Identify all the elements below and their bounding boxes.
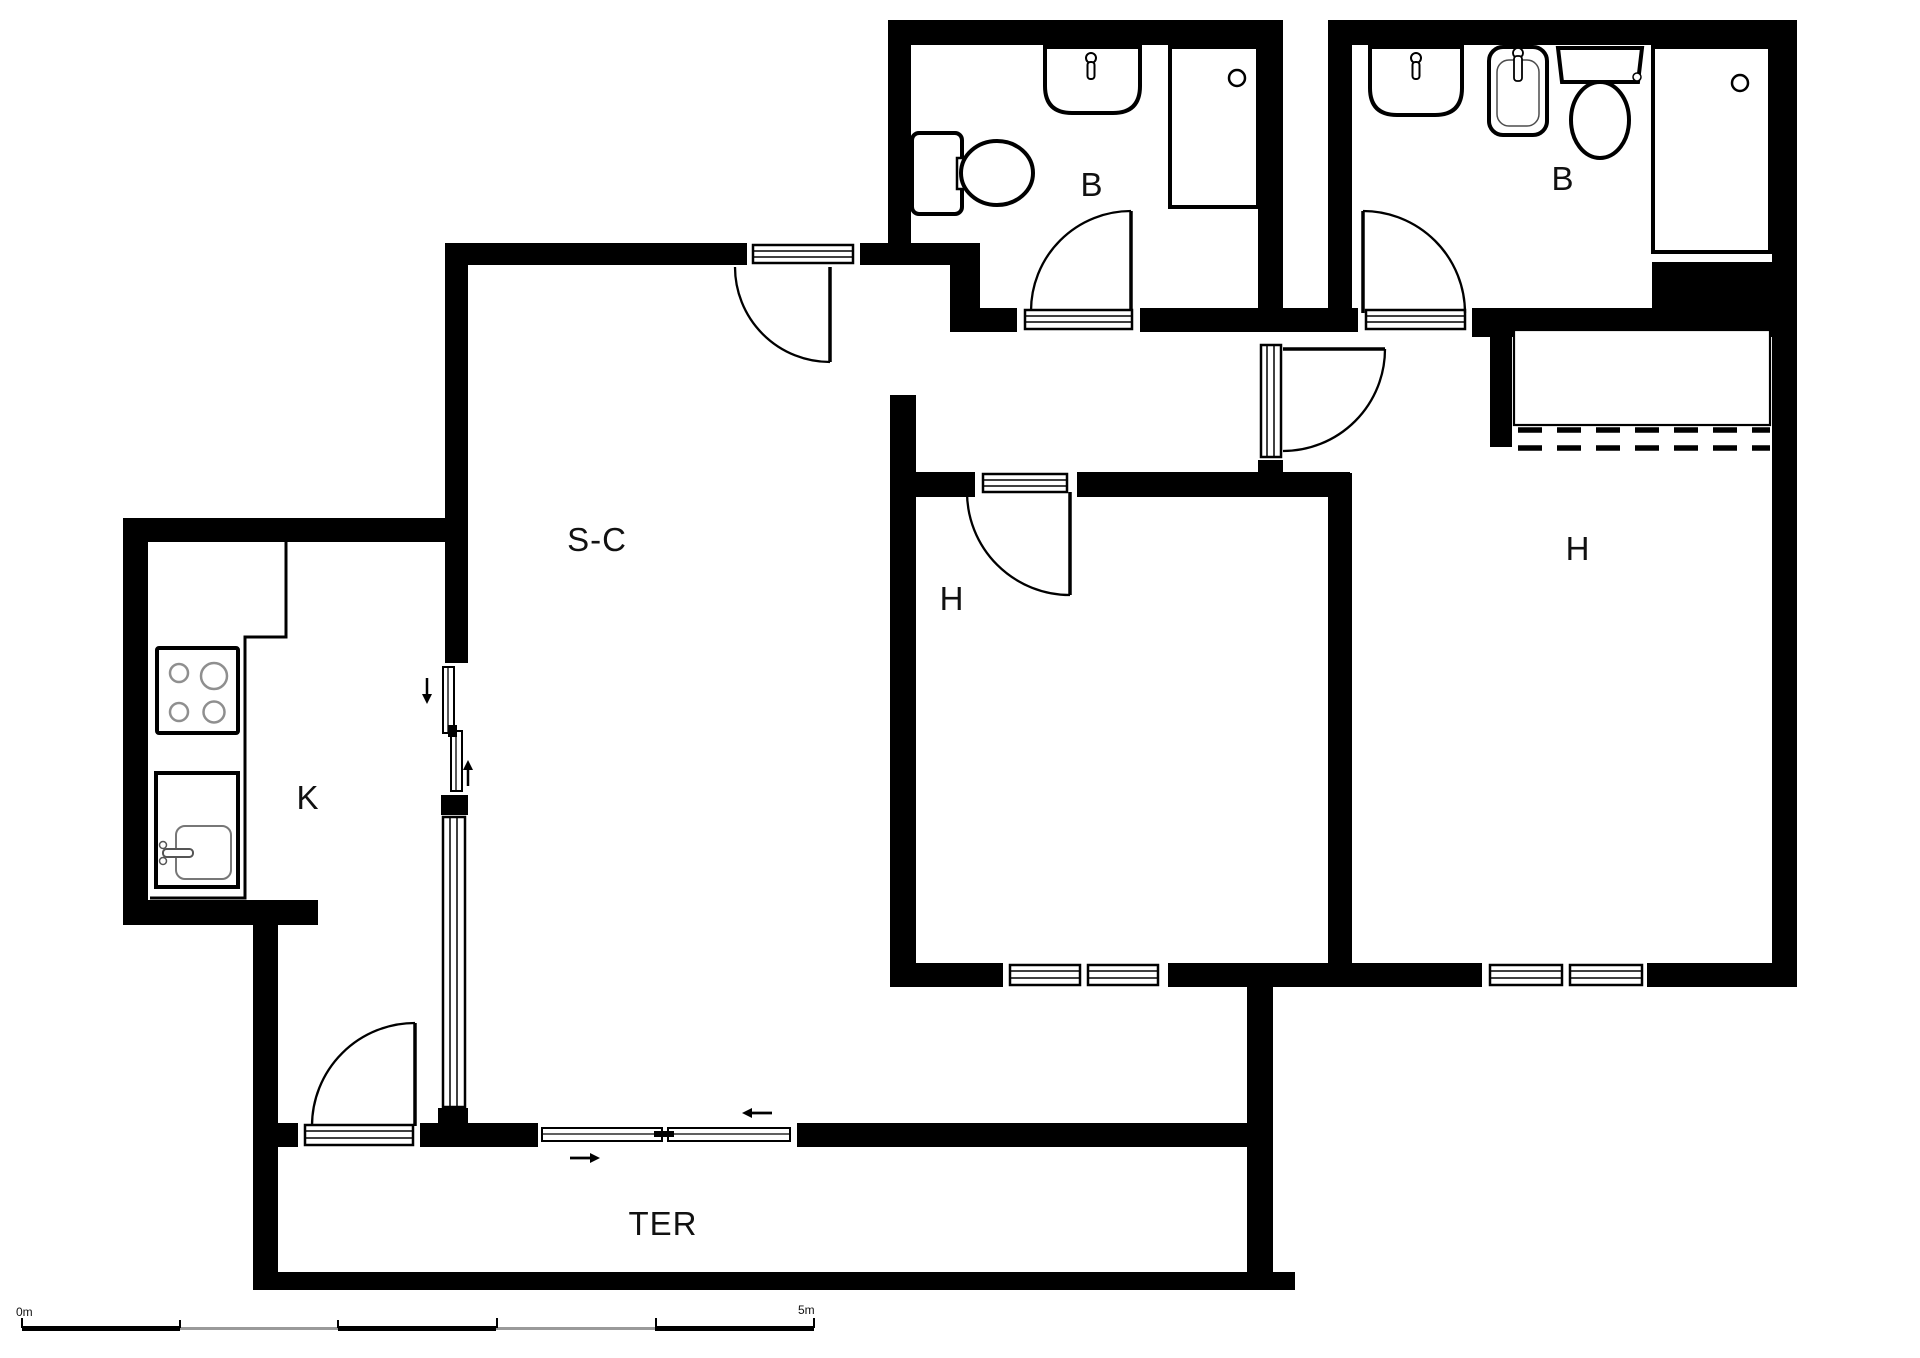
room-label-bedroom-center: H xyxy=(940,580,965,617)
wall xyxy=(1352,963,1482,987)
room-label-kitchen: K xyxy=(296,779,319,816)
arrow-up-icon xyxy=(463,760,473,786)
door-bathroom2 xyxy=(1363,211,1465,313)
windows-and-thresholds xyxy=(305,245,1642,1145)
room-label-bedroom-right: H xyxy=(1566,530,1591,567)
toilet xyxy=(1558,48,1642,158)
window xyxy=(443,817,465,1107)
wall xyxy=(1077,472,1350,497)
shower-tray xyxy=(1653,47,1770,252)
wall xyxy=(950,308,1017,332)
wall xyxy=(1490,308,1512,447)
wall xyxy=(445,243,468,663)
wall xyxy=(1328,20,1352,310)
wall xyxy=(273,1123,298,1147)
sliding-door xyxy=(542,1128,790,1141)
wall xyxy=(253,1272,1295,1290)
floorplan-page: B B S-C K H H TER 0m 5m xyxy=(0,0,1920,1358)
wall xyxy=(1258,460,1283,474)
door-threshold xyxy=(1366,310,1465,329)
arrow-down-icon xyxy=(422,678,432,704)
wall xyxy=(253,900,278,1290)
bidet xyxy=(1489,47,1547,135)
scale-start-label: 0m xyxy=(16,1305,33,1319)
arrow-right-icon xyxy=(570,1153,600,1163)
wall xyxy=(420,1123,538,1147)
sliding-door xyxy=(443,667,462,791)
wall xyxy=(1258,20,1283,332)
door-threshold xyxy=(983,474,1067,492)
wall xyxy=(123,518,468,542)
wall xyxy=(123,900,318,925)
wall xyxy=(123,518,148,925)
wardrobe xyxy=(1514,330,1770,448)
room-label-bathroom2: B xyxy=(1551,160,1574,197)
wall xyxy=(1652,262,1772,310)
door-bedroom-right xyxy=(1283,349,1385,451)
wall xyxy=(1647,963,1797,987)
room-label-living: S-C xyxy=(567,521,627,558)
door-bathroom1 xyxy=(1031,211,1131,311)
stove xyxy=(157,648,238,733)
direction-arrows xyxy=(422,678,772,1163)
wall xyxy=(1283,308,1358,332)
shower-tray xyxy=(1170,47,1258,207)
wall xyxy=(888,20,1283,45)
kitchen-sink xyxy=(156,773,238,887)
door-threshold xyxy=(1261,345,1281,457)
wall xyxy=(1247,963,1273,1290)
washbasin xyxy=(1370,47,1462,115)
doors xyxy=(312,211,1465,1126)
wall xyxy=(1772,20,1797,987)
wall xyxy=(890,395,916,987)
door-terrace-kitchen xyxy=(312,1023,415,1126)
kitchen-fixtures xyxy=(150,542,286,898)
wall xyxy=(445,243,747,265)
door-threshold xyxy=(753,245,853,263)
wall xyxy=(1328,20,1797,45)
arrow-left-icon xyxy=(742,1108,772,1118)
wall xyxy=(797,1123,1273,1147)
scale-end-label: 5m xyxy=(798,1303,815,1317)
floorplan-drawing: B B S-C K H H TER 0m 5m xyxy=(0,0,1920,1358)
door-bedroom-center xyxy=(967,492,1070,595)
washbasin xyxy=(1045,47,1140,113)
window xyxy=(1490,965,1642,985)
room-label-bathroom1: B xyxy=(1080,166,1103,203)
wall xyxy=(888,20,911,247)
door-living-entry xyxy=(735,267,830,362)
window xyxy=(1010,965,1158,985)
scale-bar: 0m 5m xyxy=(16,1303,815,1331)
room-label-terrace: TER xyxy=(629,1205,698,1242)
bathroom2-fixtures xyxy=(1370,47,1770,252)
wall xyxy=(441,795,468,815)
door-threshold xyxy=(305,1125,413,1145)
wall xyxy=(1328,473,1352,987)
toilet xyxy=(912,133,1033,214)
door-threshold xyxy=(1025,310,1132,329)
